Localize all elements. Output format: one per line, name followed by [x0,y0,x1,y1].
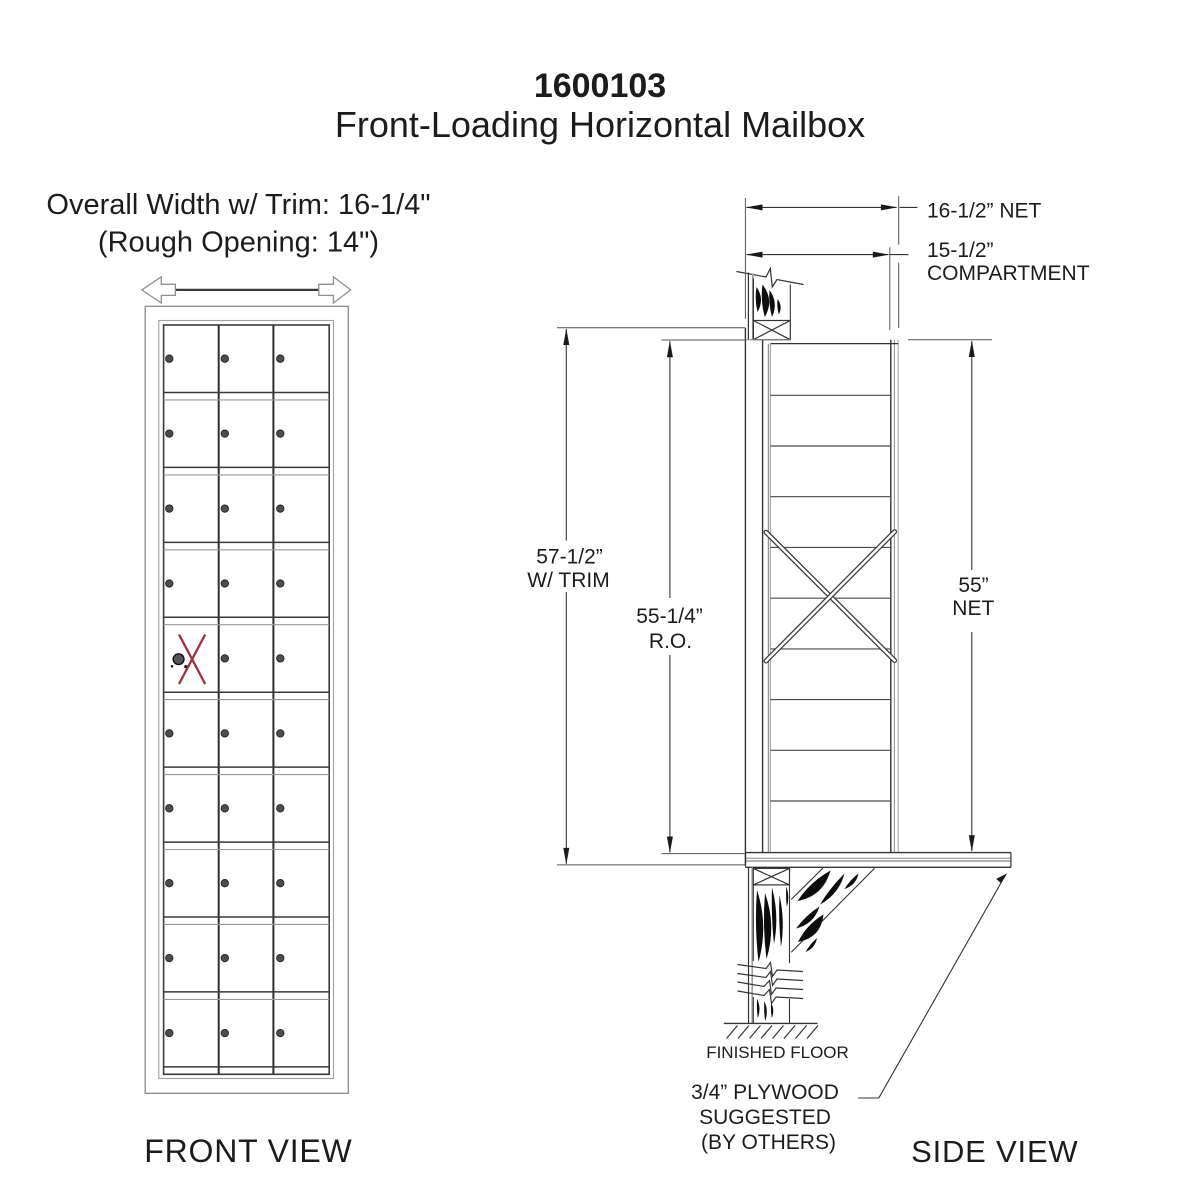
svg-text:FINISHED FLOOR: FINISHED FLOOR [706,1043,849,1062]
svg-text:R.O.: R.O. [649,630,692,653]
svg-text:NET: NET [952,597,994,620]
svg-text:Overall Width w/ Trim: 16-1/4": Overall Width w/ Trim: 16-1/4" [46,189,430,221]
svg-text:COMPARTMENT: COMPARTMENT [927,262,1090,285]
svg-text:W/ TRIM: W/ TRIM [527,569,609,592]
svg-text:FRONT VIEW: FRONT VIEW [144,1133,352,1169]
svg-text:1600103: 1600103 [534,67,666,105]
svg-text:57-1/2”: 57-1/2” [536,546,603,569]
svg-text:3/4” PLYWOOD: 3/4” PLYWOOD [691,1081,839,1104]
svg-text:15-1/2”: 15-1/2” [927,239,994,262]
svg-text:SIDE VIEW: SIDE VIEW [911,1134,1078,1169]
svg-text:(Rough Opening: 14"): (Rough Opening: 14") [98,227,379,259]
svg-text:(BY OTHERS): (BY OTHERS) [701,1131,836,1154]
svg-text:16-1/2” NET: 16-1/2” NET [927,200,1042,223]
svg-text:SUGGESTED: SUGGESTED [699,1106,831,1129]
svg-text:Front-Loading Horizontal Mailb: Front-Loading Horizontal Mailbox [335,104,865,145]
svg-text:55”: 55” [958,574,988,597]
svg-text:55-1/4”: 55-1/4” [636,605,703,628]
